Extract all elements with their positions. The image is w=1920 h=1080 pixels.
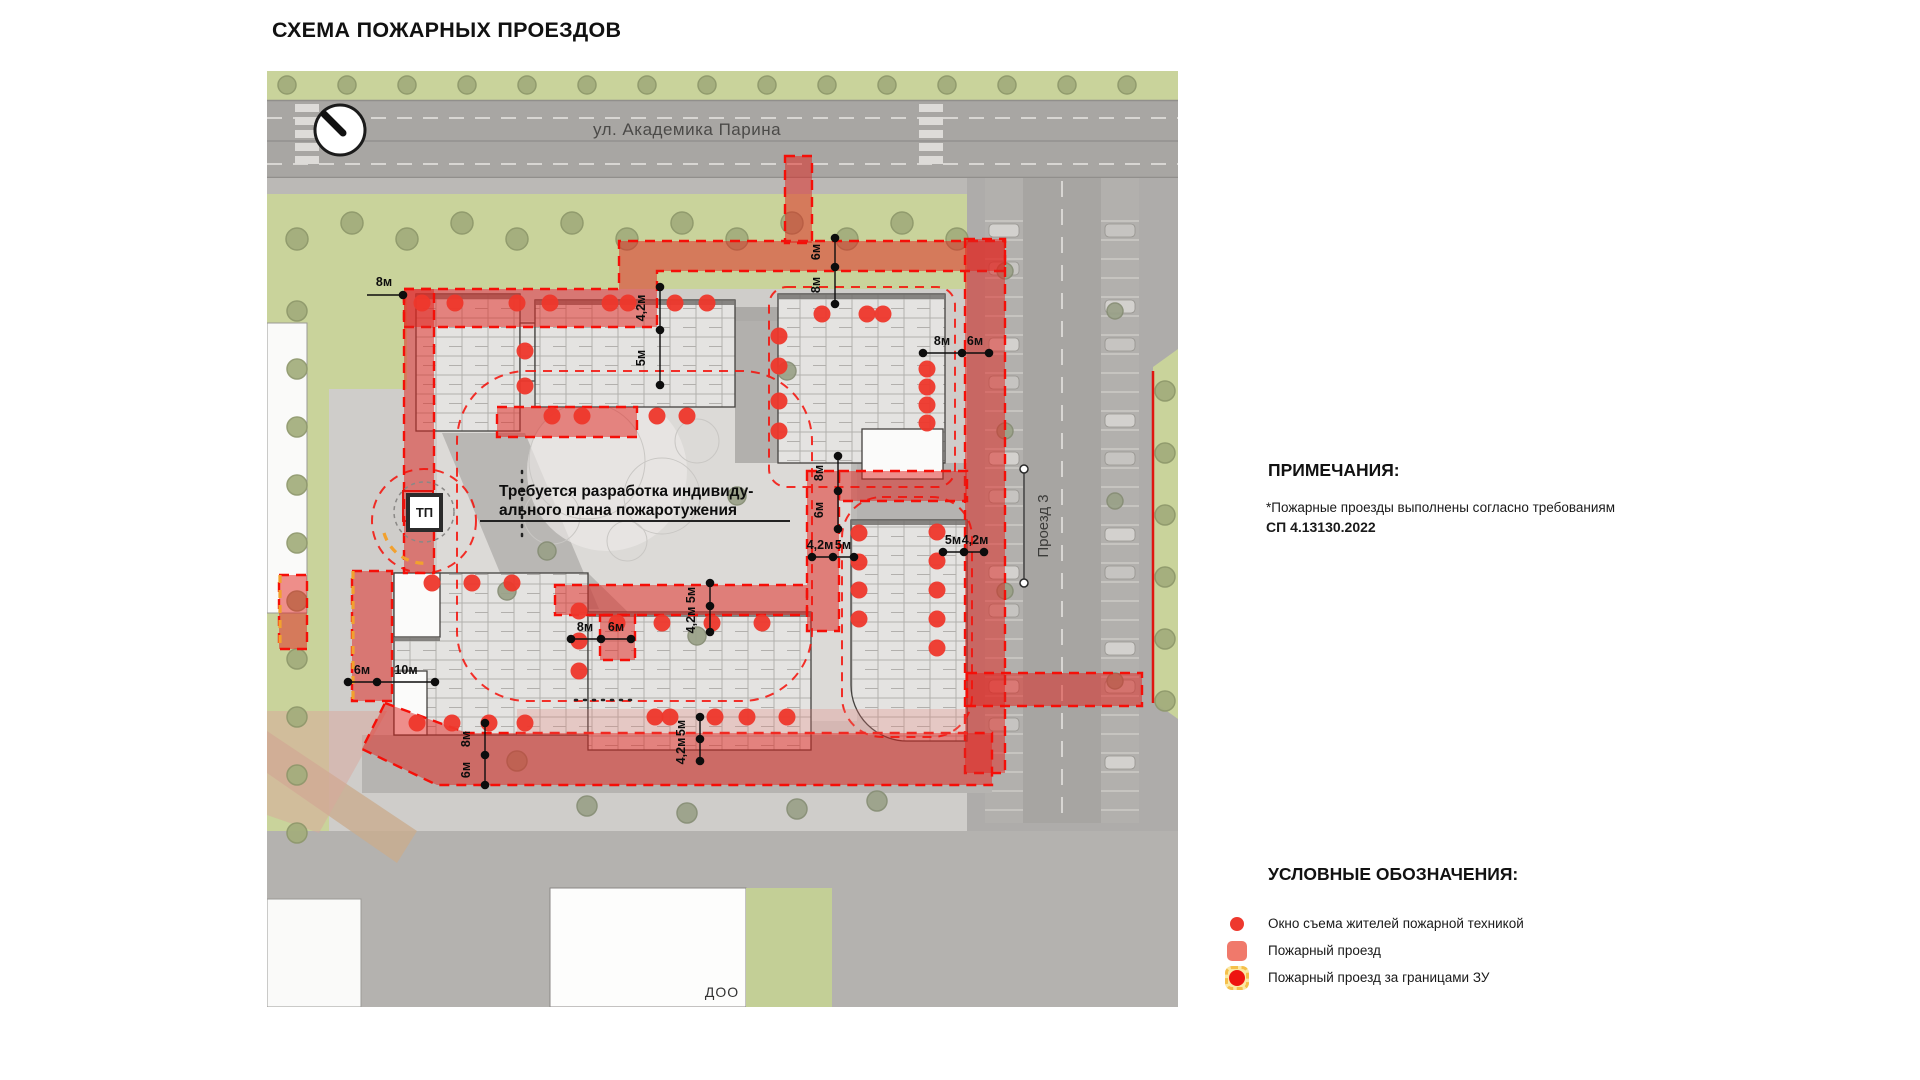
rescue-window-dot [919,397,936,414]
dimension-label: 5м [684,587,698,603]
street-label-right: Проезд 3 [1035,494,1052,557]
rescue-window-dot [919,379,936,396]
rescue-window-dot [814,306,831,323]
rescue-window-dot [929,640,946,657]
dimension-label: 6м [812,502,826,518]
dimension-label: 6м [967,334,983,348]
legend-label: Пожарный проезд [1268,943,1381,958]
dimension-label: 6м [459,762,473,778]
fire-lane-outside-boundary-icon [1224,965,1250,991]
rescue-window-dot [649,408,666,425]
dimension-label: 10м [394,663,417,677]
notes-body: *Пожарные проезды выполнены согласно тре… [1266,499,1615,537]
notes-code: СП 4.13130.2022 [1266,518,1615,538]
rescue-window-dot [509,295,526,312]
rescue-window-dot-icon [1224,911,1250,937]
rescue-window-dot [544,408,561,425]
rescue-window-dot [571,663,588,680]
legend-label: Окно съема жителей пожарной техникой [1268,916,1524,931]
dimension-label: 8м [376,275,392,289]
dimension-label: 5м [634,350,648,366]
doo-label: ДОО [705,984,739,1000]
notes-heading: ПРИМЕЧАНИЯ: [1268,460,1400,481]
rescue-window-dot [517,343,534,360]
rescue-window-dot [699,295,716,312]
legend-item-rescue-window: Окно съема жителей пожарной техникой [1224,910,1644,937]
rescue-window-dot [754,615,771,632]
dimension-label: 4,2м [962,533,989,547]
dimension-label: 5м [945,533,961,547]
building-6 [851,520,967,741]
rescue-window-dot [929,524,946,541]
rescue-window-dot [647,709,664,726]
rescue-window-dot [409,715,426,732]
rescue-window-dot [602,295,619,312]
dimension-label: 8м [812,465,826,481]
north-arrow-icon [315,105,365,155]
dimension-label: 5м [674,720,688,736]
rescue-window-dot [542,295,559,312]
rescue-window-dot [517,378,534,395]
dimension-label: 4,2м [684,607,698,634]
dimension-label: 4,2м [807,538,834,552]
rescue-window-dot [919,415,936,432]
rescue-window-dot [707,709,724,726]
rescue-window-dot [779,709,796,726]
page-title: СХЕМА ПОЖАРНЫХ ПРОЕЗДОВ [272,18,621,43]
rescue-window-dot [679,408,696,425]
street-label-top: ул. Академика Парина [593,120,781,139]
dimension-label: 6м [809,244,823,260]
legend-item-fire-lane-outside: Пожарный проезд за границами ЗУ [1224,964,1644,991]
rescue-window-dot [859,306,876,323]
rescue-window-dot [504,575,521,592]
legend-label: Пожарный проезд за границами ЗУ [1268,970,1489,985]
rescue-window-dot [739,709,756,726]
rescue-window-dot [771,423,788,440]
dimension-label: 6м [354,663,370,677]
rescue-window-dot [919,361,936,378]
annotation-line-1: Требуется разработка индивиду- [499,483,753,500]
legend: Окно съема жителей пожарной техникой Пож… [1224,910,1644,991]
rescue-window-dot [851,525,868,542]
rescue-window-dot [444,715,461,732]
rescue-window-dot [771,328,788,345]
notes-text: *Пожарные проезды выполнены согласно тре… [1266,499,1615,518]
rescue-window-dot [771,358,788,375]
dimension-label: 4,2м [674,738,688,765]
dimension-label: 8м [934,334,950,348]
rescue-window-dot [447,295,464,312]
rescue-window-dot [667,295,684,312]
fire-lane-icon [1224,938,1250,964]
dimension-label: 6м [608,620,624,634]
tp-label: ТП [416,505,433,520]
rescue-window-dot [517,715,534,732]
rescue-window-dot [929,611,946,628]
rescue-window-dot [851,582,868,599]
site-plan-canvas: ТП ул. Академика Парина Проезд 3 ДОО Тре… [267,71,1178,1007]
legend-heading: УСЛОВНЫЕ ОБОЗНАЧЕНИЯ: [1268,864,1518,885]
dimension-label: 8м [459,731,473,747]
annotation-line-2: ального плана пожаротужения [499,502,737,519]
rescue-window-dot [414,295,431,312]
page: СХЕМА ПОЖАРНЫХ ПРОЕЗДОВ [0,0,1920,1080]
rescue-window-dot [571,603,588,620]
rescue-window-dot [464,575,481,592]
dimension-label: 4,2м [634,295,648,322]
rescue-window-dot [851,611,868,628]
dimension-label: 8м [809,277,823,293]
rescue-window-dot [654,615,671,632]
rescue-window-dot [771,393,788,410]
dimension-label: 8м [577,620,593,634]
dimension-label: 5м [835,538,851,552]
rescue-window-dot [424,575,441,592]
site-plan-map: ТП ул. Академика Парина Проезд 3 ДОО Тре… [267,71,1178,1007]
legend-item-fire-lane: Пожарный проезд [1224,937,1644,964]
rescue-window-dot [875,306,892,323]
rescue-window-dot [574,408,591,425]
fire-lane-outside-1 [279,575,307,649]
rescue-window-dot [929,582,946,599]
